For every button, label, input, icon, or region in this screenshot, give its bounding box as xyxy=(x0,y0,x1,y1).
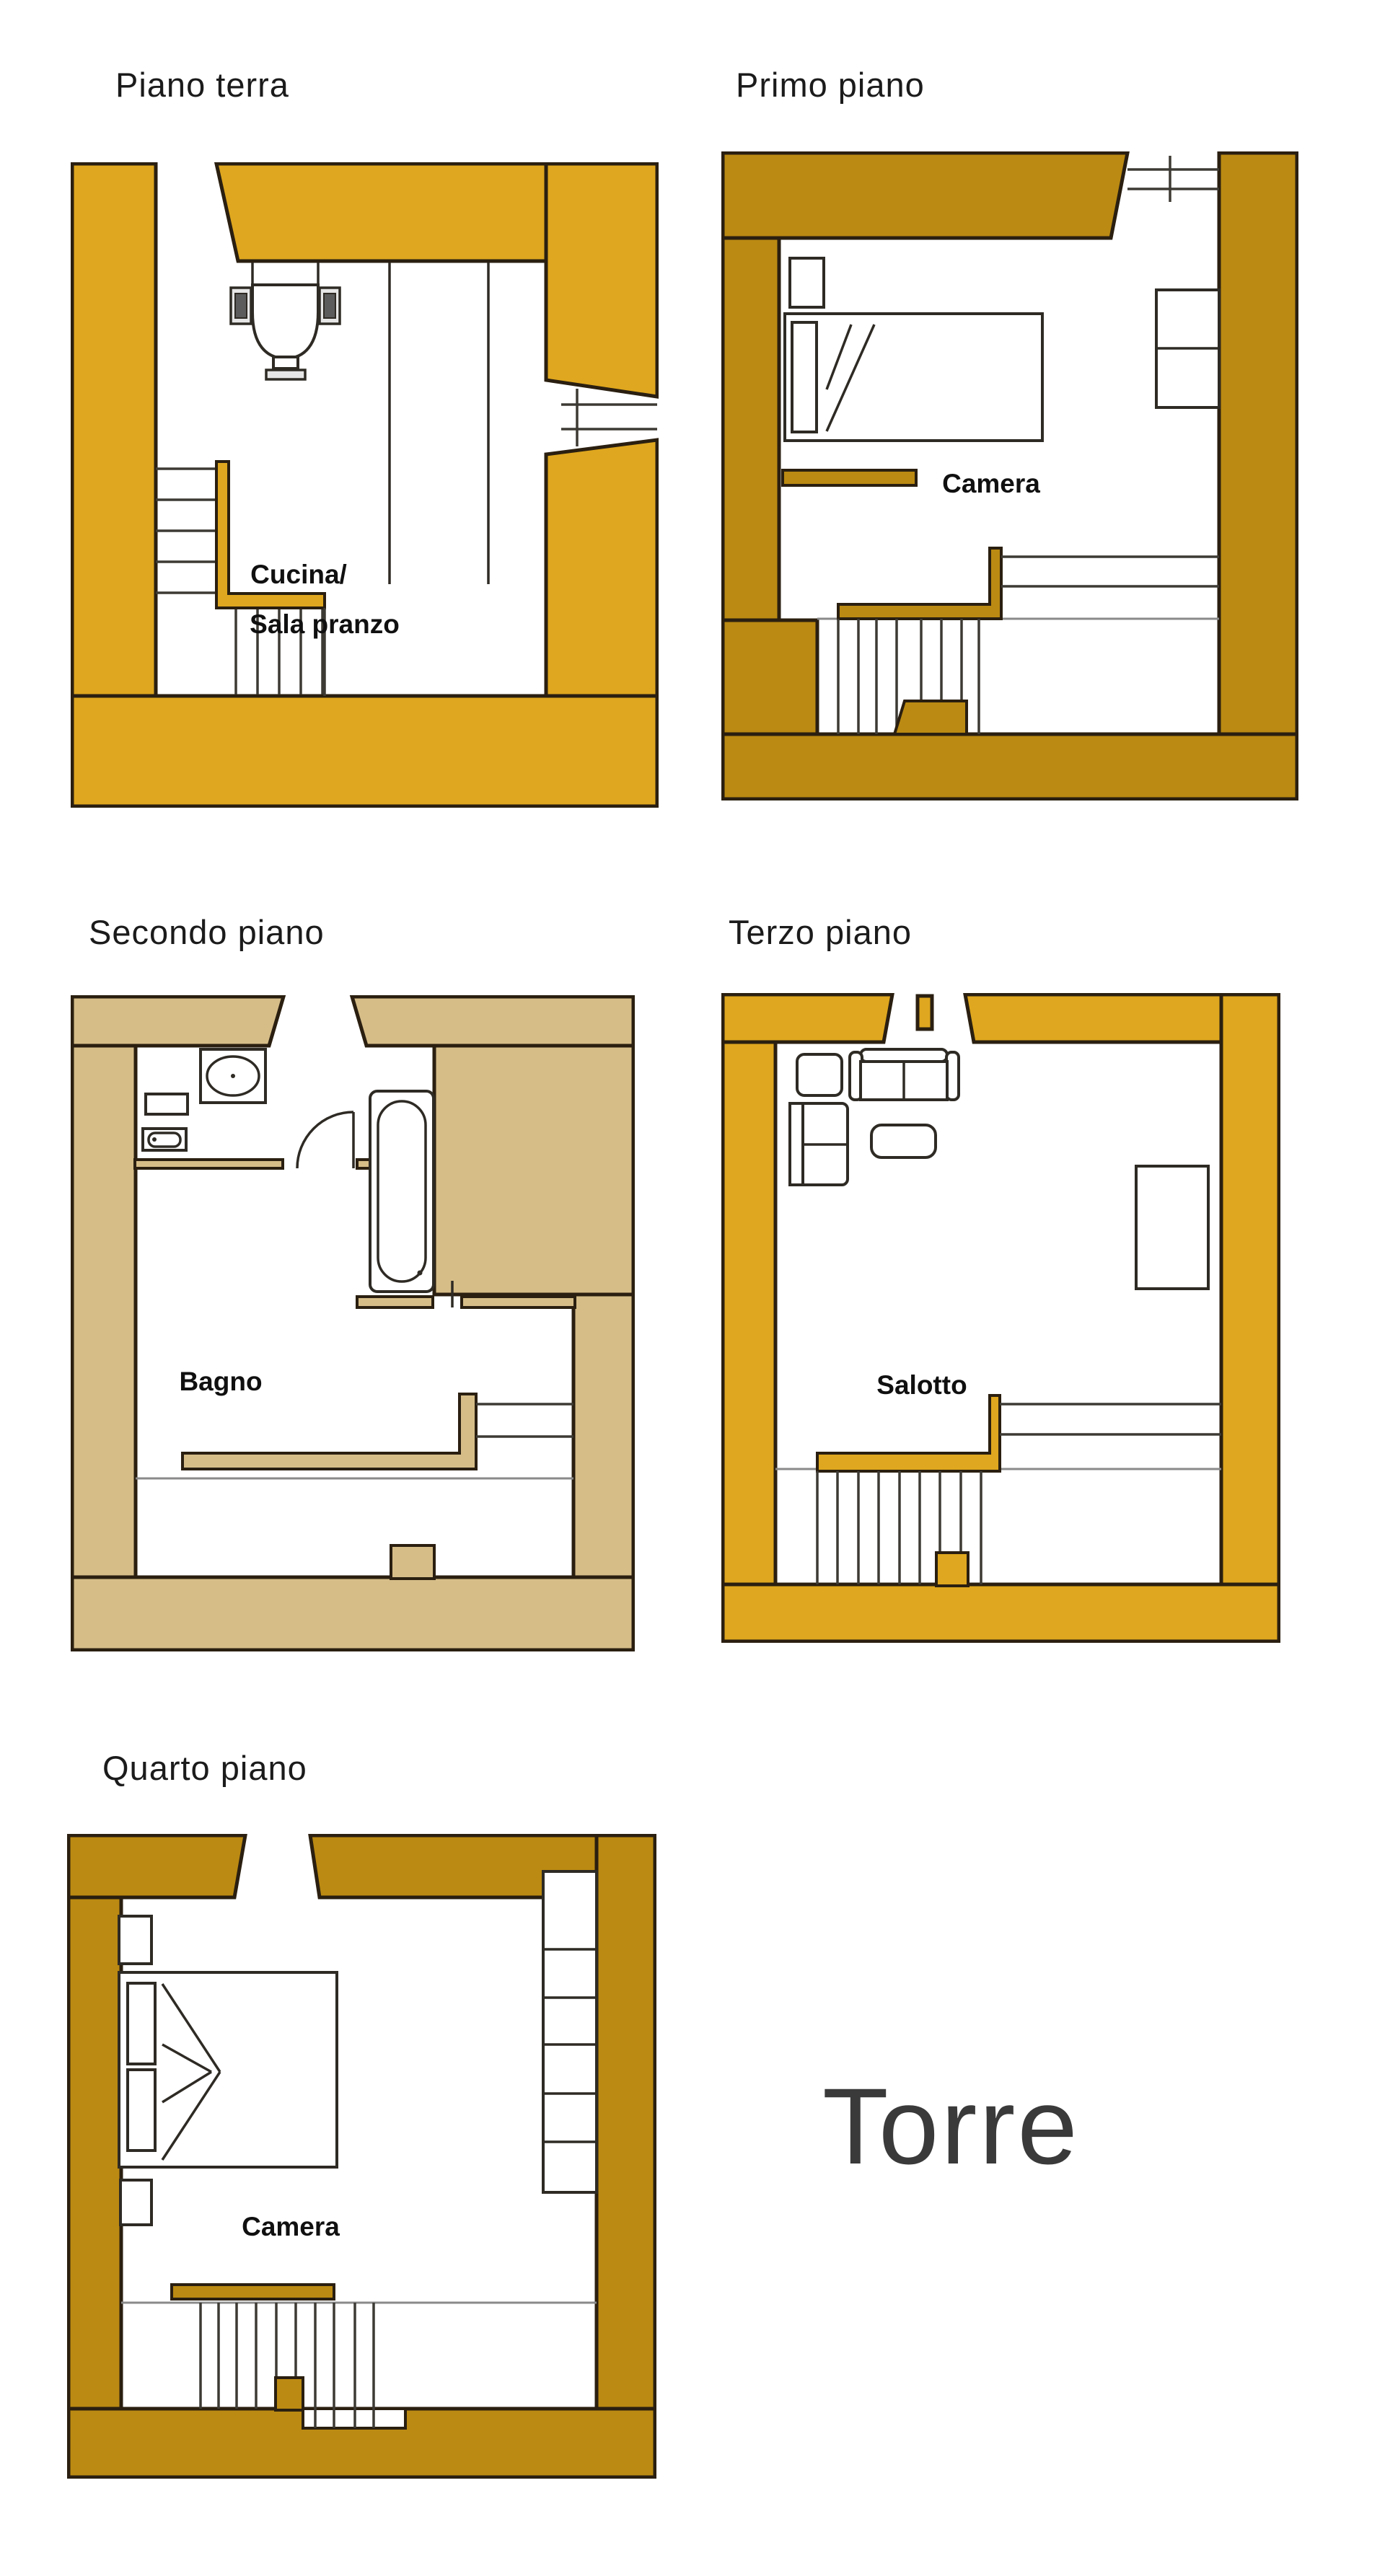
chaise-back xyxy=(790,1103,803,1185)
building-label: Torre xyxy=(822,2064,1080,2189)
stair-notch xyxy=(894,701,967,734)
floor-plan-secondo-piano: Bagno xyxy=(71,995,635,1651)
floor-title-primo-piano: Primo piano xyxy=(736,65,925,105)
floor-plan-quarto-piano: Camera xyxy=(67,1834,656,2479)
shelving-body xyxy=(543,1871,597,2192)
wall-top-right xyxy=(352,997,633,1046)
chimney-pillar xyxy=(918,996,932,1029)
stove-neck xyxy=(273,357,298,369)
bidet-drain xyxy=(152,1137,157,1142)
partition-wall xyxy=(462,1297,575,1307)
bed-frame xyxy=(785,314,1042,441)
floor-plan-piano-terra: Cucina/ Sala pranzo xyxy=(71,162,659,808)
piano-terra-svg: Cucina/ Sala pranzo xyxy=(71,162,659,808)
wall-right-upper xyxy=(546,164,657,397)
wall-top-center xyxy=(216,164,546,261)
floor-title-terzo-piano: Terzo piano xyxy=(729,912,912,952)
wall-top-left xyxy=(723,994,892,1042)
wall-left xyxy=(723,994,775,1641)
partition-wall xyxy=(135,1160,283,1168)
bathtub-icon xyxy=(370,1091,434,1292)
sofa-icon xyxy=(850,1049,959,1100)
bed-pillow xyxy=(792,322,817,432)
nightstand-icon xyxy=(119,1916,151,1964)
wardrobe-icon xyxy=(1156,290,1219,407)
floor-plan-terzo-piano: Salotto xyxy=(721,993,1280,1643)
stove-handle-grip xyxy=(235,294,247,318)
room-label: Cucina/ xyxy=(250,560,347,589)
chaise-icon xyxy=(790,1103,848,1185)
shelf-icon xyxy=(146,1094,188,1114)
primo-piano-svg: Camera xyxy=(721,151,1298,800)
bed-pillow xyxy=(128,2070,155,2151)
room-label: Camera xyxy=(942,469,1040,498)
banister xyxy=(172,2285,334,2299)
armchair-icon xyxy=(797,1054,842,1095)
wall-right xyxy=(1221,994,1279,1641)
sofa-back xyxy=(861,1049,947,1062)
sink-icon xyxy=(201,1049,265,1103)
stair-notch xyxy=(391,1545,434,1579)
coffee-table-icon xyxy=(871,1125,936,1157)
floor-title-piano-terra: Piano terra xyxy=(115,65,289,105)
wall-right xyxy=(597,1835,655,2477)
double-bed-icon xyxy=(119,1972,337,2167)
stair-notch xyxy=(276,2378,303,2410)
wall-top-left xyxy=(72,997,283,1046)
terzo-piano-svg: Salotto xyxy=(721,993,1280,1643)
quarto-piano-svg: Camera xyxy=(67,1834,656,2479)
wall-bottom xyxy=(72,696,657,806)
wall-right xyxy=(1219,153,1297,799)
floor-plan-primo-piano: Camera xyxy=(721,151,1298,800)
room-label: Camera xyxy=(242,2212,340,2241)
stove-body xyxy=(252,285,318,358)
wall-left xyxy=(69,1835,121,2477)
bidet-icon xyxy=(143,1129,186,1150)
wall-right-lower xyxy=(546,440,657,696)
wall-bottom xyxy=(723,1584,1279,1641)
wall-top-left xyxy=(69,1835,245,1897)
wall-bottom xyxy=(723,734,1297,799)
nightstand-icon xyxy=(790,258,824,307)
wall-top xyxy=(723,153,1127,238)
floor-title-quarto-piano: Quarto piano xyxy=(102,1748,307,1788)
single-bed-icon xyxy=(785,314,1042,441)
stove-base xyxy=(266,370,305,379)
parapet-wall xyxy=(783,470,916,485)
room-label: Salotto xyxy=(876,1370,967,1400)
partition-wall xyxy=(357,1297,433,1307)
secondo-piano-svg: Bagno xyxy=(71,995,635,1651)
bed-pillow xyxy=(128,1983,155,2064)
sink-drain xyxy=(231,1074,235,1078)
bathtub-rim xyxy=(370,1091,434,1292)
wall-right-upper xyxy=(434,1046,633,1294)
floor-plan-sheet: Piano terra Primo piano Secondo piano Te… xyxy=(0,0,1385,2576)
nightstand-icon xyxy=(120,2180,151,2225)
bathtub-drain xyxy=(418,1271,423,1276)
shelving-icon xyxy=(543,1871,597,2192)
wall-left xyxy=(72,997,136,1650)
floor-title-secondo-piano: Secondo piano xyxy=(89,912,325,952)
stove-handle-grip xyxy=(324,294,335,318)
room-label: Sala pranzo xyxy=(250,609,400,639)
stair-notch xyxy=(936,1553,968,1586)
room-label: Bagno xyxy=(179,1367,262,1396)
wall-bottom xyxy=(72,1577,633,1650)
cabinet-icon xyxy=(1136,1166,1208,1289)
